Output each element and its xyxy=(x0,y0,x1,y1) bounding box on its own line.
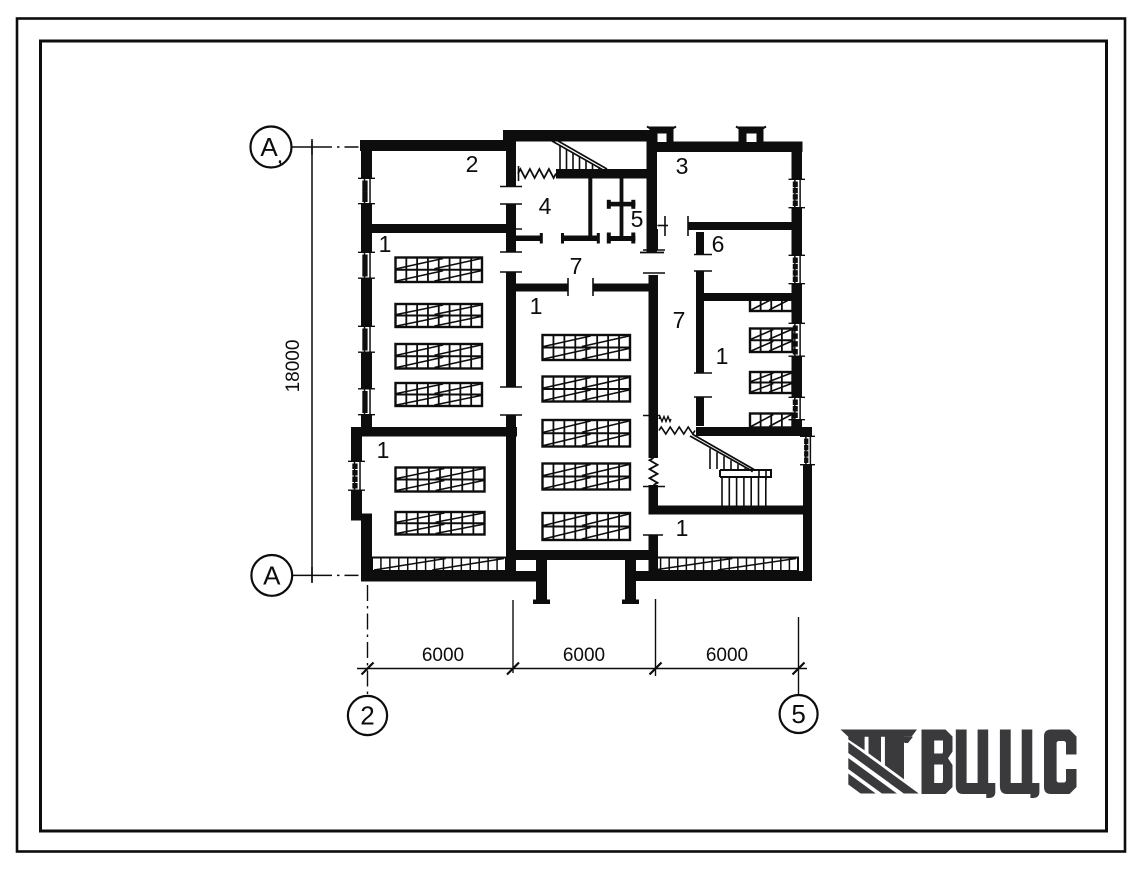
svg-text:5: 5 xyxy=(791,699,805,729)
svg-text:A: A xyxy=(263,561,281,591)
svg-text:1: 1 xyxy=(530,293,543,319)
svg-text:6000: 6000 xyxy=(563,645,605,666)
svg-text:1: 1 xyxy=(377,437,390,463)
svg-text:7: 7 xyxy=(570,253,583,279)
svg-text:,: , xyxy=(277,142,284,169)
svg-text:6000: 6000 xyxy=(706,645,748,666)
svg-text:6: 6 xyxy=(712,231,725,257)
svg-text:3: 3 xyxy=(676,153,689,179)
svg-text:18000: 18000 xyxy=(283,340,304,393)
svg-text:6000: 6000 xyxy=(422,645,464,666)
svg-text:4: 4 xyxy=(539,193,552,219)
svg-text:1: 1 xyxy=(676,515,689,541)
svg-text:2: 2 xyxy=(360,701,374,731)
svg-text:7: 7 xyxy=(673,307,686,333)
svg-text:2: 2 xyxy=(466,151,479,177)
svg-text:5: 5 xyxy=(631,206,644,232)
svg-text:1: 1 xyxy=(716,343,729,369)
svg-text:А: А xyxy=(260,132,278,162)
svg-text:1: 1 xyxy=(379,231,392,257)
